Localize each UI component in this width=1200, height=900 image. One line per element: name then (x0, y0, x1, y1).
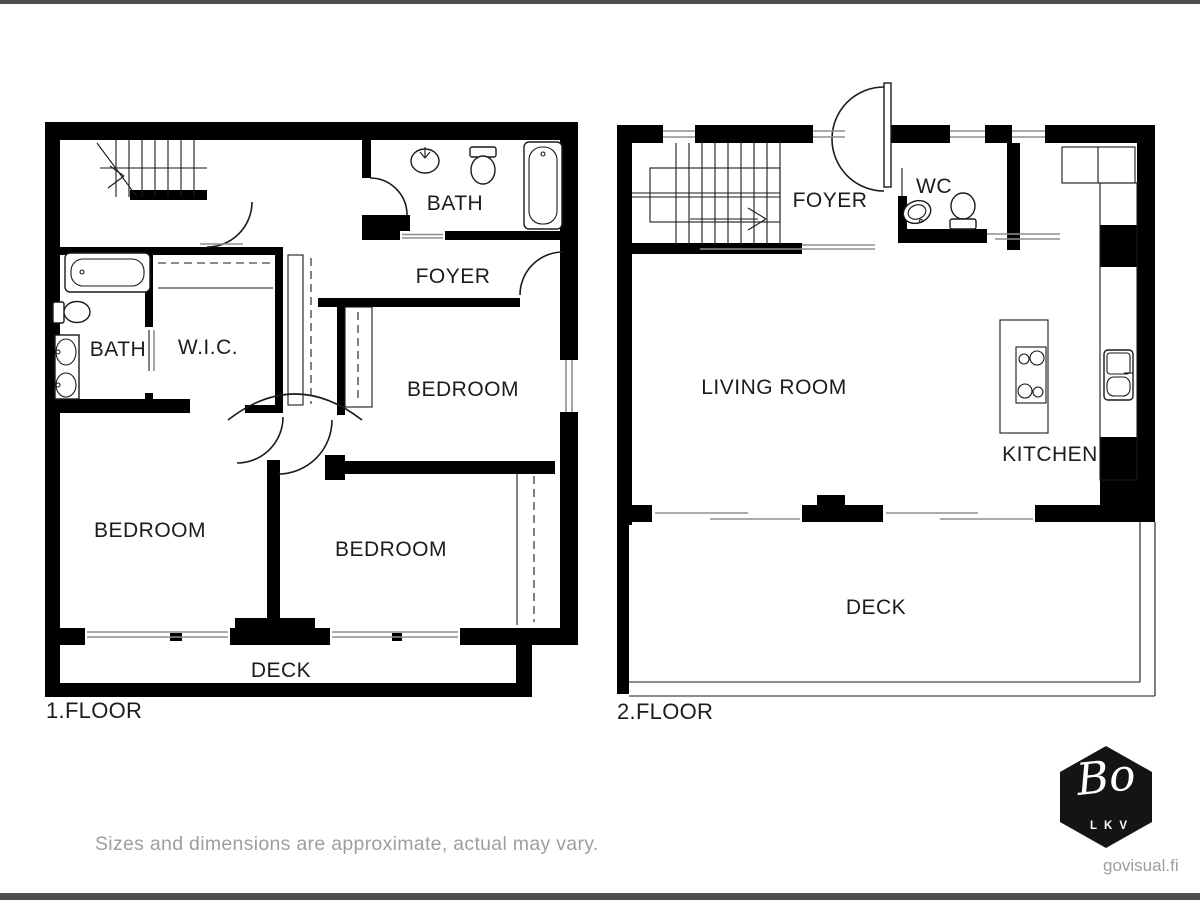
room-label-bedroom-left: BEDROOM (94, 519, 206, 543)
floor2-kitchen-sink (1104, 350, 1133, 400)
website-url: govisual.fi (1103, 856, 1179, 876)
door-arc (207, 202, 252, 247)
room-label-foyer-f2: FOYER (793, 189, 868, 213)
floor2-staircase (632, 143, 780, 243)
floor2-title: 2.FLOOR (617, 699, 713, 725)
room-label-foyer-f1: FOYER (416, 265, 491, 289)
room-label-kitchen: KITCHEN (1002, 443, 1098, 467)
door-arc (237, 417, 283, 463)
floor1-title: 1.FLOOR (46, 698, 142, 724)
room-label-living-room: LIVING ROOM (701, 376, 847, 400)
logo-brand-text: Bo (1056, 747, 1157, 808)
room-label-wic: W.I.C. (178, 336, 238, 360)
floor1-plan (45, 122, 578, 697)
floorplan-page: BATH FOYER BATH W.I.C. BEDROOM BEDROOM B… (0, 0, 1200, 900)
floor2-interior-walls (617, 143, 1137, 482)
floor1-bathtub-top-bath (524, 142, 562, 229)
room-label-bath-top: BATH (427, 192, 483, 216)
door-arc (278, 420, 332, 474)
room-label-bedroom-right: BEDROOM (407, 378, 519, 402)
room-label-bedroom-middle: BEDROOM (335, 538, 447, 562)
agency-logo: Bo LKV (1058, 744, 1154, 850)
room-label-bath-left: BATH (90, 338, 146, 362)
floor1-sink-top-bath (411, 147, 439, 173)
room-label-deck-f1: DECK (251, 659, 311, 683)
door-arc (520, 252, 563, 295)
door-arc (370, 178, 407, 215)
disclaimer-text: Sizes and dimensions are approximate, ac… (95, 833, 599, 856)
logo-subtext: LKV (1064, 820, 1160, 832)
floor2-wc-toilet (950, 193, 976, 229)
floor1-toilet-top-bath (470, 147, 496, 184)
floor1-bathtub-left (65, 253, 150, 292)
floor1-staircase (97, 140, 207, 197)
floor2-kitchen-island (1000, 320, 1048, 433)
floor2-kitchen-counter (1062, 147, 1137, 480)
floor1-toilet-left (53, 302, 90, 324)
room-label-wc: WC (916, 175, 952, 199)
floor1-double-sink-vanity (55, 335, 79, 399)
room-label-deck-f2: DECK (846, 596, 906, 620)
floor1-closets (158, 255, 534, 625)
